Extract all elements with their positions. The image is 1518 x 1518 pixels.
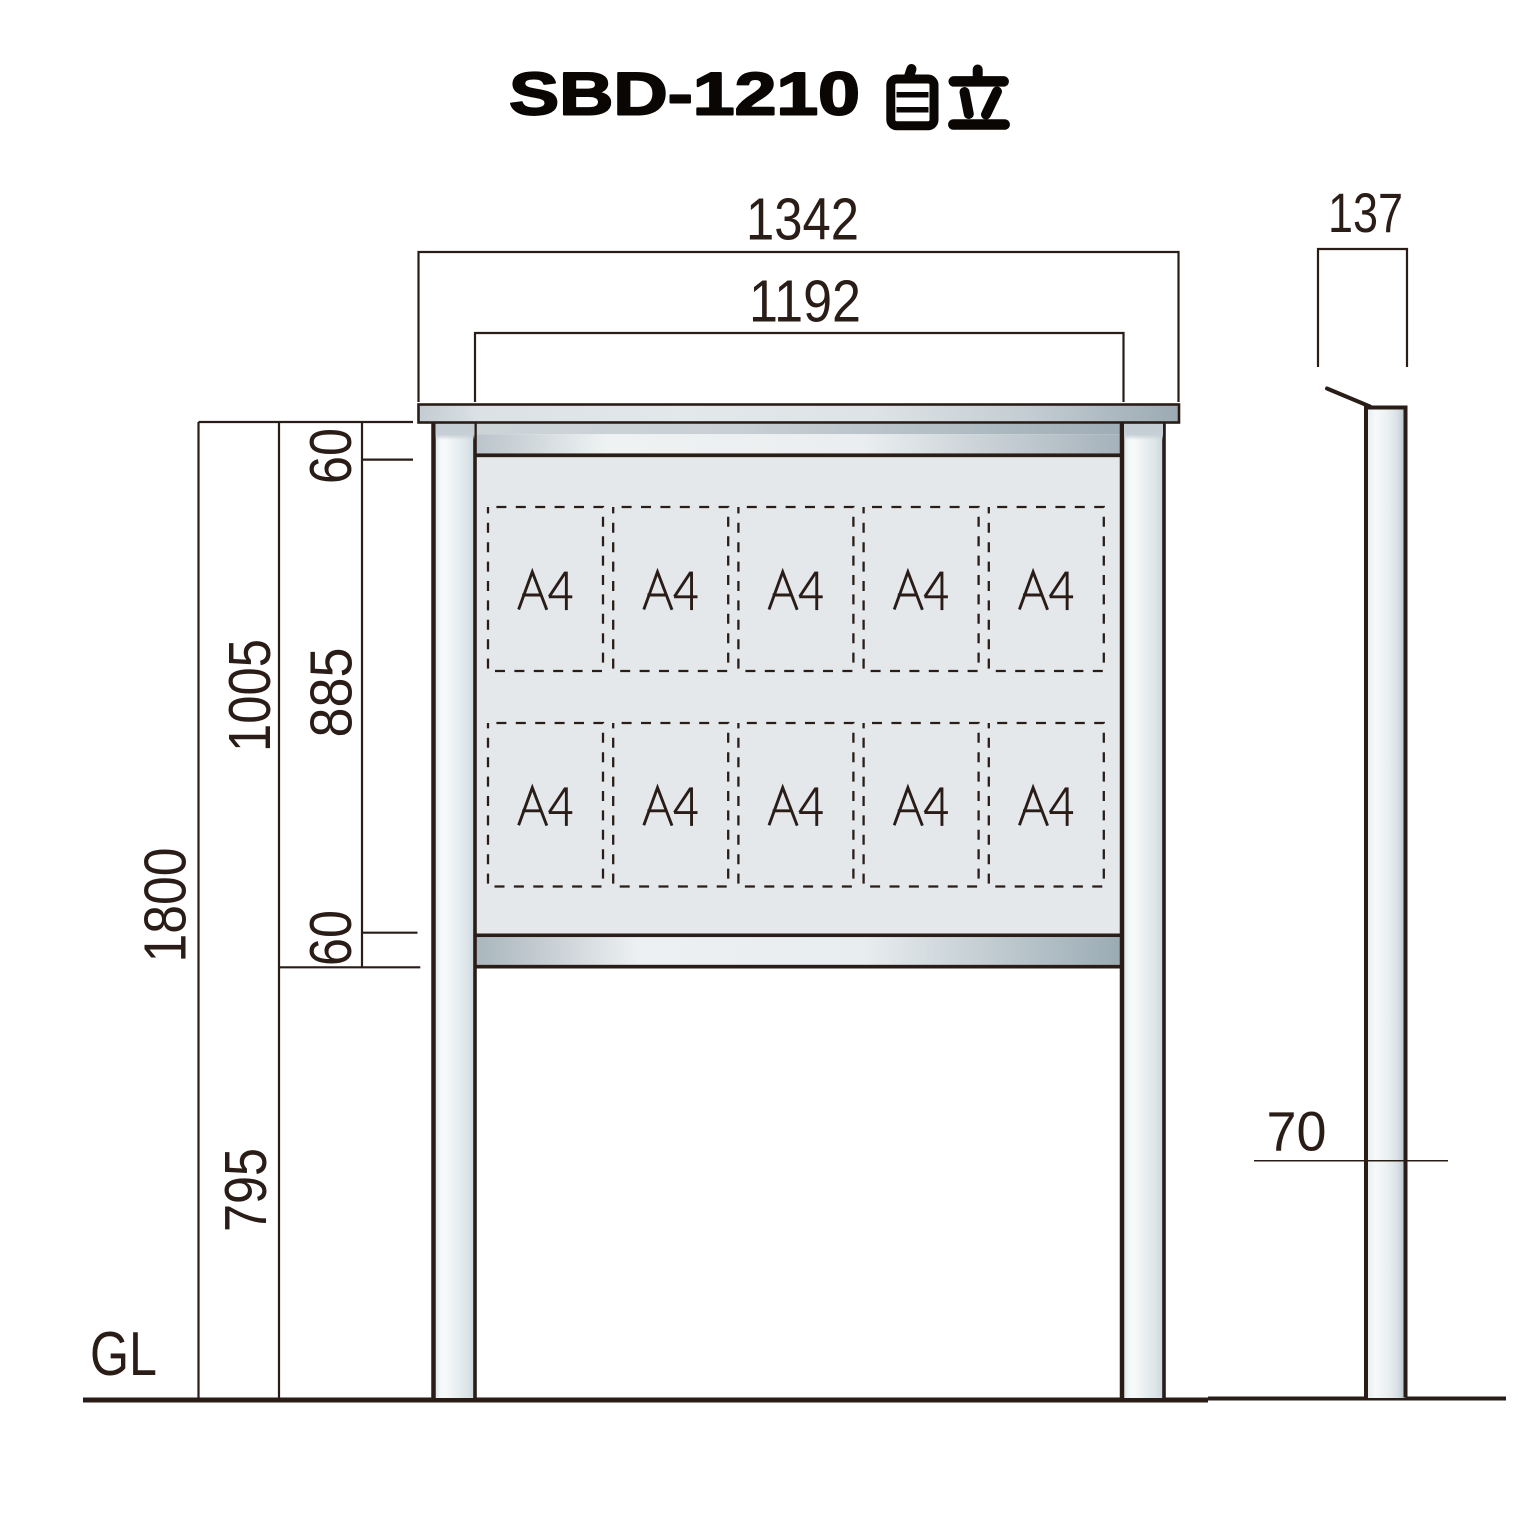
svg-text:137: 137 xyxy=(1328,181,1403,244)
svg-text:1192: 1192 xyxy=(749,269,861,335)
svg-text:70: 70 xyxy=(1267,1100,1327,1163)
svg-text:885: 885 xyxy=(299,648,365,738)
svg-text:1800: 1800 xyxy=(133,848,199,963)
svg-text:1005: 1005 xyxy=(217,639,283,752)
svg-text:SBD-1210: SBD-1210 xyxy=(509,61,860,128)
svg-text:60: 60 xyxy=(298,910,364,966)
svg-text:GL: GL xyxy=(90,1320,157,1389)
svg-text:60: 60 xyxy=(298,428,364,484)
svg-text:1342: 1342 xyxy=(746,187,859,253)
svg-text:795: 795 xyxy=(213,1148,279,1232)
